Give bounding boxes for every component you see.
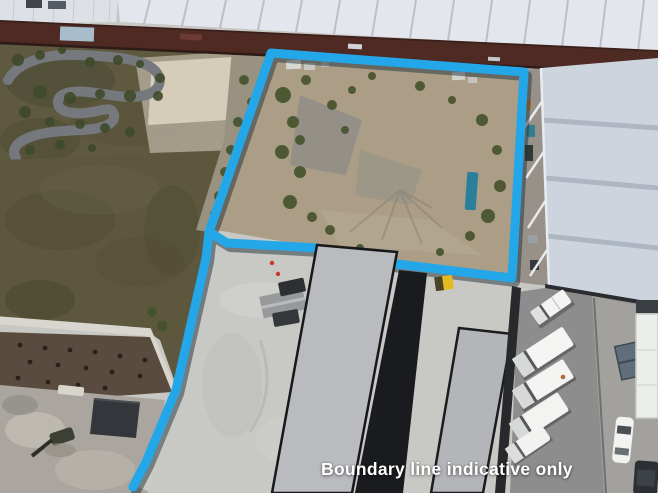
boundary-disclaimer-text: Boundary line indicative only [321,459,573,480]
dark-car [633,460,658,493]
scene-canvas [0,0,658,493]
yellow-forklift [434,275,454,291]
red-marker [270,261,274,265]
storage-shed [90,398,140,438]
wall-sign [60,26,94,41]
truck-trailer [636,300,658,418]
aerial-photo: Boundary line indicative only [0,0,658,493]
red-marker [276,272,280,276]
east-warehouse-roof [541,58,658,322]
person [561,375,566,380]
